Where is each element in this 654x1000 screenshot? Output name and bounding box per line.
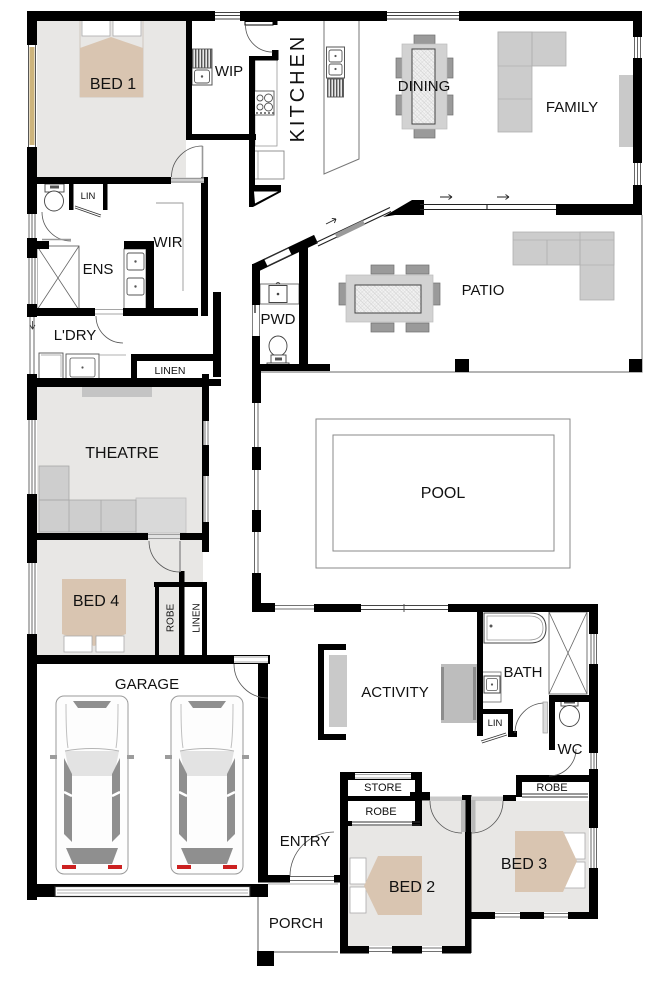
svg-text:BED 1: BED 1 [90,76,136,93]
svg-text:BED 3: BED 3 [501,856,547,873]
svg-text:POOL: POOL [421,485,466,502]
svg-text:KITCHEN: KITCHEN [287,34,309,143]
svg-text:ACTIVITY: ACTIVITY [361,684,429,701]
svg-text:WIR: WIR [153,234,182,251]
svg-text:GARAGE: GARAGE [115,676,179,693]
svg-text:ENTRY: ENTRY [280,833,331,850]
svg-text:ENS: ENS [83,261,114,278]
svg-text:ROBE: ROBE [536,782,567,794]
svg-text:ROBE: ROBE [365,806,396,818]
svg-text:STORE: STORE [364,782,402,794]
svg-text:ROBE: ROBE [166,604,177,633]
svg-text:PWD: PWD [261,311,296,328]
svg-text:FAMILY: FAMILY [546,99,598,116]
svg-text:BED 4: BED 4 [73,593,119,610]
svg-text:LINEN: LINEN [192,603,203,632]
svg-text:WC: WC [558,741,583,758]
svg-text:LINEN: LINEN [155,365,186,377]
svg-text:DINING: DINING [398,78,451,95]
svg-text:BATH: BATH [504,664,543,681]
svg-text:THEATRE: THEATRE [85,445,158,462]
svg-text:LIN: LIN [81,191,96,202]
svg-text:PATIO: PATIO [462,282,505,299]
svg-text:L'DRY: L'DRY [54,327,97,344]
svg-text:BED 2: BED 2 [389,879,435,896]
svg-text:WIP: WIP [215,63,243,80]
svg-text:LIN: LIN [488,718,503,729]
svg-text:PORCH: PORCH [269,915,323,932]
